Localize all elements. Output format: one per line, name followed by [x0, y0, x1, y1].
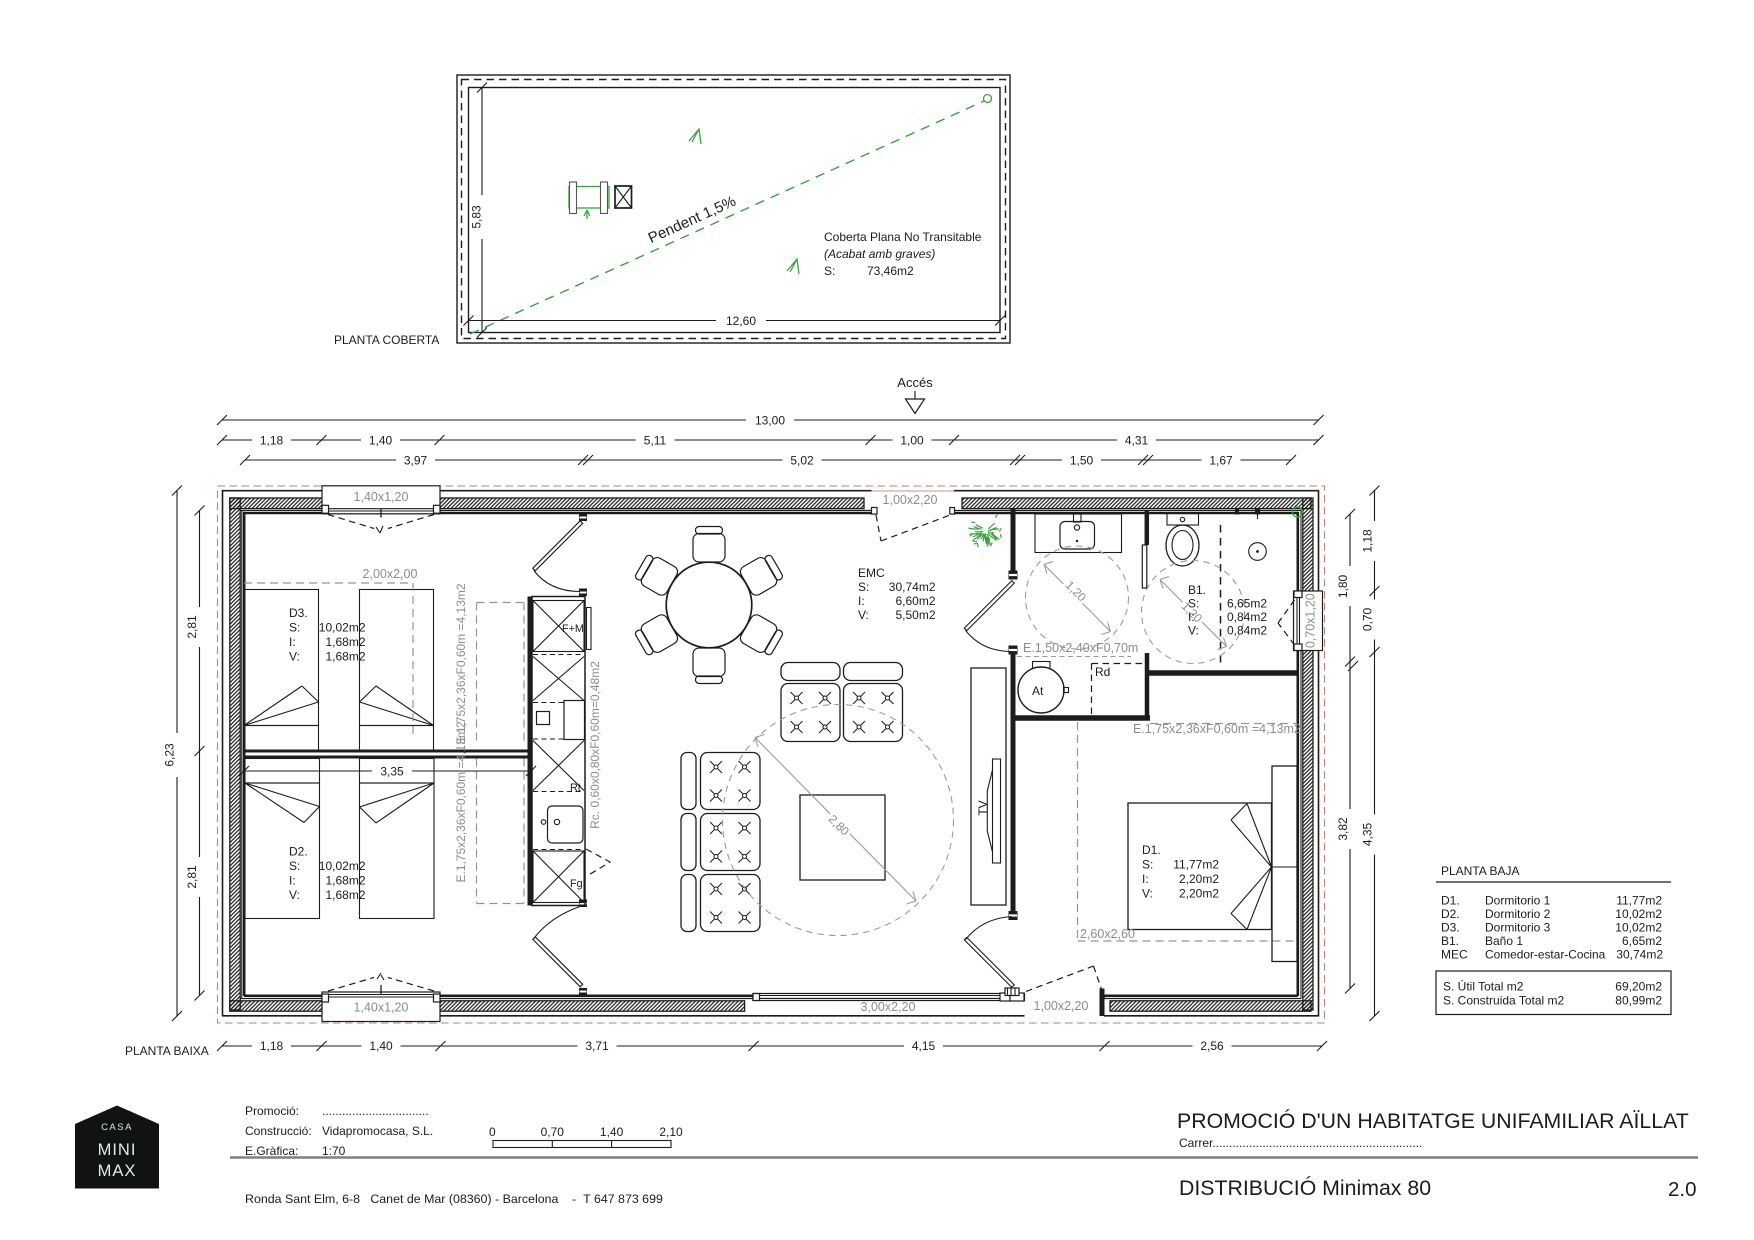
- svg-text:V:: V:: [1188, 624, 1199, 638]
- svg-text:3,00x2,20: 3,00x2,20: [861, 1000, 916, 1014]
- svg-text:2,10: 2,10: [659, 1125, 683, 1139]
- svg-text:I:: I:: [289, 635, 296, 649]
- svg-text:0,84m2: 0,84m2: [1227, 624, 1267, 638]
- svg-text:12,60: 12,60: [726, 314, 756, 328]
- svg-text:5,50m2: 5,50m2: [895, 608, 935, 622]
- svg-text:PLANTA BAJA: PLANTA BAJA: [1441, 864, 1519, 878]
- svg-text:6,60m2: 6,60m2: [895, 594, 935, 608]
- svg-text:30,74m2: 30,74m2: [1616, 948, 1663, 962]
- svg-text:E.1,75x2,36xF0,60m =4,13m2: E.1,75x2,36xF0,60m =4,13m2: [1133, 722, 1301, 736]
- svg-text:D2.: D2.: [1441, 907, 1460, 921]
- svg-text:PLANTA BAIXA: PLANTA BAIXA: [125, 1044, 209, 1058]
- svg-text:2,20m2: 2,20m2: [1179, 887, 1219, 901]
- svg-text:(Acabat amb graves): (Acabat amb graves): [824, 247, 935, 261]
- svg-text:PLANTA COBERTA: PLANTA COBERTA: [334, 333, 439, 347]
- svg-text:0,70: 0,70: [1361, 607, 1375, 631]
- svg-text:4,35: 4,35: [1361, 822, 1375, 846]
- svg-text:2,81: 2,81: [185, 865, 199, 889]
- svg-text:I:: I:: [1142, 872, 1149, 886]
- svg-text:3,97: 3,97: [404, 454, 428, 468]
- svg-text:V:: V:: [289, 888, 300, 902]
- svg-text:At: At: [1032, 684, 1044, 698]
- svg-text:Rd: Rd: [1095, 665, 1110, 679]
- svg-text:1,68m2: 1,68m2: [325, 888, 365, 902]
- svg-text:5,83: 5,83: [470, 205, 484, 229]
- svg-text:0,70: 0,70: [541, 1125, 565, 1139]
- svg-text:1,18: 1,18: [260, 434, 284, 448]
- svg-text:1,40: 1,40: [369, 434, 393, 448]
- svg-text:Fg: Fg: [570, 878, 583, 890]
- svg-text:..............................: ................................: [322, 1104, 429, 1118]
- svg-text:V:: V:: [1142, 887, 1153, 901]
- svg-text:1,18: 1,18: [260, 1039, 284, 1053]
- svg-text:E.Gràfica:: E.Gràfica:: [245, 1144, 298, 1158]
- svg-text:B1.: B1.: [1441, 934, 1459, 948]
- svg-text:Accés: Accés: [897, 375, 933, 390]
- svg-text:S:: S:: [289, 621, 300, 635]
- svg-text:EMC: EMC: [858, 566, 885, 580]
- svg-text:Dormitorio 2: Dormitorio 2: [1485, 907, 1551, 921]
- svg-text:V:: V:: [289, 650, 300, 664]
- svg-text:S:: S:: [858, 580, 869, 594]
- svg-text:69,20m2: 69,20m2: [1615, 980, 1662, 994]
- svg-text:2.0: 2.0: [1668, 1178, 1697, 1201]
- svg-text:E.1,50x2,40xF0,70m: E.1,50x2,40xF0,70m: [1023, 641, 1138, 655]
- svg-text:1,68m2: 1,68m2: [325, 635, 365, 649]
- svg-text:2,00x2,00: 2,00x2,00: [363, 567, 418, 581]
- svg-text:1,40x1,20: 1,40x1,20: [354, 490, 409, 504]
- svg-text:0,84m2: 0,84m2: [1227, 610, 1267, 624]
- svg-text:Comedor-estar-Cocina: Comedor-estar-Cocina: [1485, 948, 1606, 962]
- svg-text:I:: I:: [858, 594, 865, 608]
- svg-text:4,15: 4,15: [912, 1039, 936, 1053]
- svg-text:80,99m2: 80,99m2: [1615, 994, 1662, 1008]
- svg-text:0,70x1,20: 0,70x1,20: [1304, 593, 1318, 648]
- svg-text:MAX: MAX: [98, 1162, 137, 1180]
- svg-text:10,02m2: 10,02m2: [1615, 921, 1662, 935]
- svg-text:13,00: 13,00: [755, 414, 785, 428]
- svg-text:D2.: D2.: [289, 845, 308, 859]
- svg-text:1,18: 1,18: [1361, 529, 1375, 553]
- svg-text:E.1,75x2,36xF0,60m =4,13m2: E.1,75x2,36xF0,60m =4,13m2: [454, 721, 468, 882]
- svg-text:0: 0: [489, 1125, 496, 1139]
- svg-text:I:: I:: [289, 874, 296, 888]
- svg-text:1,50: 1,50: [1070, 454, 1094, 468]
- svg-text:E.1,75x2,36xF0,60m =4,13m2: E.1,75x2,36xF0,60m =4,13m2: [454, 583, 468, 744]
- svg-text:1,40x1,20: 1,40x1,20: [354, 1001, 409, 1015]
- svg-text:2,56: 2,56: [1200, 1039, 1224, 1053]
- svg-text:D3.: D3.: [1441, 921, 1460, 935]
- svg-text:1,40: 1,40: [600, 1125, 624, 1139]
- svg-text:Rc. 0,60x0,80xF0,60m=0,48m2: Rc. 0,60x0,80xF0,60m=0,48m2: [588, 661, 602, 829]
- svg-text:1:70: 1:70: [322, 1144, 346, 1158]
- svg-text:CASA: CASA: [101, 1122, 133, 1133]
- svg-text:10,02m2: 10,02m2: [319, 621, 366, 635]
- svg-text:I:: I:: [1188, 610, 1195, 624]
- svg-text:30,74m2: 30,74m2: [889, 580, 936, 594]
- svg-text:TV: TV: [976, 800, 990, 815]
- svg-text:Coberta Plana No Transitable: Coberta Plana No Transitable: [824, 230, 982, 244]
- svg-text:3,82: 3,82: [1336, 817, 1350, 841]
- svg-text:1,67: 1,67: [1209, 454, 1233, 468]
- svg-text:V:: V:: [858, 608, 869, 622]
- svg-text:Carrer........................: Carrer..................................…: [1179, 1136, 1422, 1150]
- svg-text:S. Construida Total m2: S. Construida Total m2: [1443, 994, 1564, 1008]
- svg-text:Construcció:: Construcció:: [245, 1124, 312, 1138]
- svg-text:F+M: F+M: [562, 623, 584, 635]
- svg-text:1,40: 1,40: [369, 1039, 393, 1053]
- svg-text:5,02: 5,02: [790, 454, 814, 468]
- svg-text:Baño 1: Baño 1: [1485, 934, 1523, 948]
- svg-text:1,68m2: 1,68m2: [325, 874, 365, 888]
- svg-text:10,02m2: 10,02m2: [1615, 907, 1662, 921]
- svg-text:1,00: 1,00: [900, 434, 924, 448]
- svg-text:DISTRIBUCIÓ Minimax 80: DISTRIBUCIÓ Minimax 80: [1179, 1175, 1431, 1200]
- svg-text:11,77m2: 11,77m2: [1616, 894, 1662, 908]
- svg-text:4,31: 4,31: [1125, 434, 1149, 448]
- svg-text:1,00x2,20: 1,00x2,20: [883, 493, 938, 507]
- svg-text:3,71: 3,71: [585, 1039, 609, 1053]
- svg-text:B1.: B1.: [1188, 583, 1206, 597]
- svg-text:D3.: D3.: [289, 606, 308, 620]
- svg-text:6,23: 6,23: [163, 743, 177, 767]
- svg-text:Rt: Rt: [570, 782, 581, 794]
- svg-text:6,65m2: 6,65m2: [1622, 934, 1662, 948]
- svg-text:2,60x2,60: 2,60x2,60: [1080, 927, 1135, 941]
- svg-text:73,46m2: 73,46m2: [867, 264, 914, 278]
- svg-text:D1.: D1.: [1441, 894, 1460, 908]
- svg-text:MINI: MINI: [98, 1141, 137, 1159]
- svg-text:Vidapromocasa, S.L.: Vidapromocasa, S.L.: [322, 1124, 433, 1138]
- svg-text:S:: S:: [1142, 858, 1153, 872]
- svg-text:1,00x2,20: 1,00x2,20: [1034, 999, 1089, 1013]
- svg-text:Dormitorio 3: Dormitorio 3: [1485, 921, 1551, 935]
- svg-text:1,68m2: 1,68m2: [325, 650, 365, 664]
- svg-text:MEC: MEC: [1441, 948, 1468, 962]
- svg-text:1,80: 1,80: [1336, 574, 1350, 598]
- svg-text:11,77m2: 11,77m2: [1173, 858, 1219, 872]
- svg-text:Promoció:: Promoció:: [245, 1104, 299, 1118]
- svg-text:3,35: 3,35: [380, 765, 404, 779]
- svg-text:Ronda Sant Elm, 6-8 Canet de: Ronda Sant Elm, 6-8 Canet de Mar (08360)…: [245, 1192, 663, 1206]
- svg-text:S:: S:: [289, 859, 300, 873]
- svg-text:D1.: D1.: [1142, 843, 1161, 857]
- svg-text:5,11: 5,11: [644, 434, 667, 448]
- svg-text:2,81: 2,81: [185, 615, 199, 639]
- svg-text:2,20m2: 2,20m2: [1179, 872, 1219, 886]
- svg-text:S:: S:: [824, 264, 835, 278]
- svg-text:S:: S:: [1188, 597, 1199, 611]
- svg-text:6,65m2: 6,65m2: [1227, 597, 1267, 611]
- svg-text:S. Útil Total m2: S. Útil Total m2: [1443, 979, 1524, 994]
- svg-text:Dormitorio 1: Dormitorio 1: [1485, 894, 1551, 908]
- svg-text:PROMOCIÓ D'UN HABITATGE UNIFAM: PROMOCIÓ D'UN HABITATGE UNIFAMILIAR AÏLL…: [1177, 1108, 1689, 1133]
- svg-text:10,02m2: 10,02m2: [319, 859, 366, 873]
